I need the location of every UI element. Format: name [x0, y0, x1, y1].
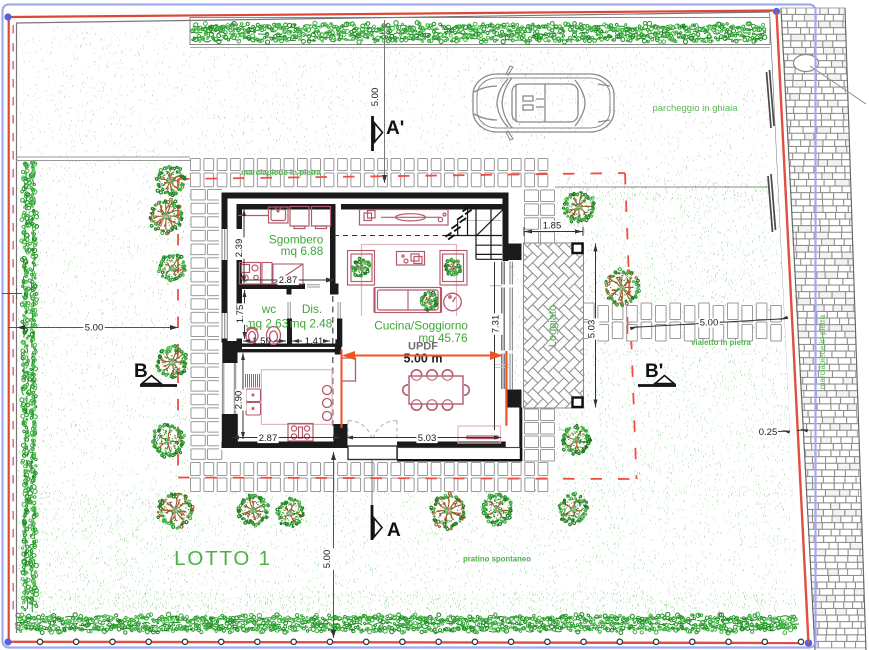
svg-text:2.87: 2.87 [259, 433, 278, 444]
svg-text:Dis.: Dis. [302, 302, 322, 316]
svg-text:mq 6.88: mq 6.88 [281, 244, 324, 258]
svg-text:2.39: 2.39 [234, 239, 245, 258]
svg-text:1.50: 1.50 [252, 336, 271, 347]
svg-text:2.90: 2.90 [234, 391, 245, 410]
svg-text:7.31: 7.31 [491, 315, 502, 334]
svg-text:B: B [134, 361, 148, 382]
svg-text:5.00: 5.00 [322, 550, 333, 569]
svg-text:marciapiede in pietra: marciapiede in pietra [241, 168, 322, 177]
svg-text:1.85: 1.85 [543, 221, 562, 232]
svg-text:pratino spontaneo: pratino spontaneo [463, 555, 531, 564]
svg-text:5.00: 5.00 [370, 88, 381, 107]
svg-text:LOTTO 1: LOTTO 1 [174, 547, 272, 570]
svg-text:vialetto in pietra: vialetto in pietra [691, 338, 751, 347]
svg-text:Loggiato: Loggiato [547, 305, 559, 347]
svg-text:1.41: 1.41 [305, 336, 324, 347]
svg-text:5.03: 5.03 [587, 320, 598, 339]
svg-text:A: A [387, 520, 401, 541]
svg-text:5.03: 5.03 [418, 433, 437, 444]
svg-text:5.00: 5.00 [85, 323, 104, 334]
svg-text:wc: wc [261, 302, 277, 316]
svg-text:5.00 m: 5.00 m [404, 352, 443, 366]
svg-text:marciapiede in pietra: marciapiede in pietra [818, 314, 827, 389]
svg-text:mq 2.63: mq 2.63 [246, 316, 289, 330]
svg-text:parcheggio in ghiaia: parcheggio in ghiaia [652, 103, 738, 114]
svg-text:5.00: 5.00 [700, 318, 719, 329]
svg-text:1.75: 1.75 [235, 305, 246, 324]
svg-text:A': A' [386, 118, 404, 139]
svg-text:mq 2.48: mq 2.48 [290, 316, 333, 330]
svg-text:2.87: 2.87 [279, 275, 298, 286]
svg-text:0.25: 0.25 [759, 427, 778, 438]
